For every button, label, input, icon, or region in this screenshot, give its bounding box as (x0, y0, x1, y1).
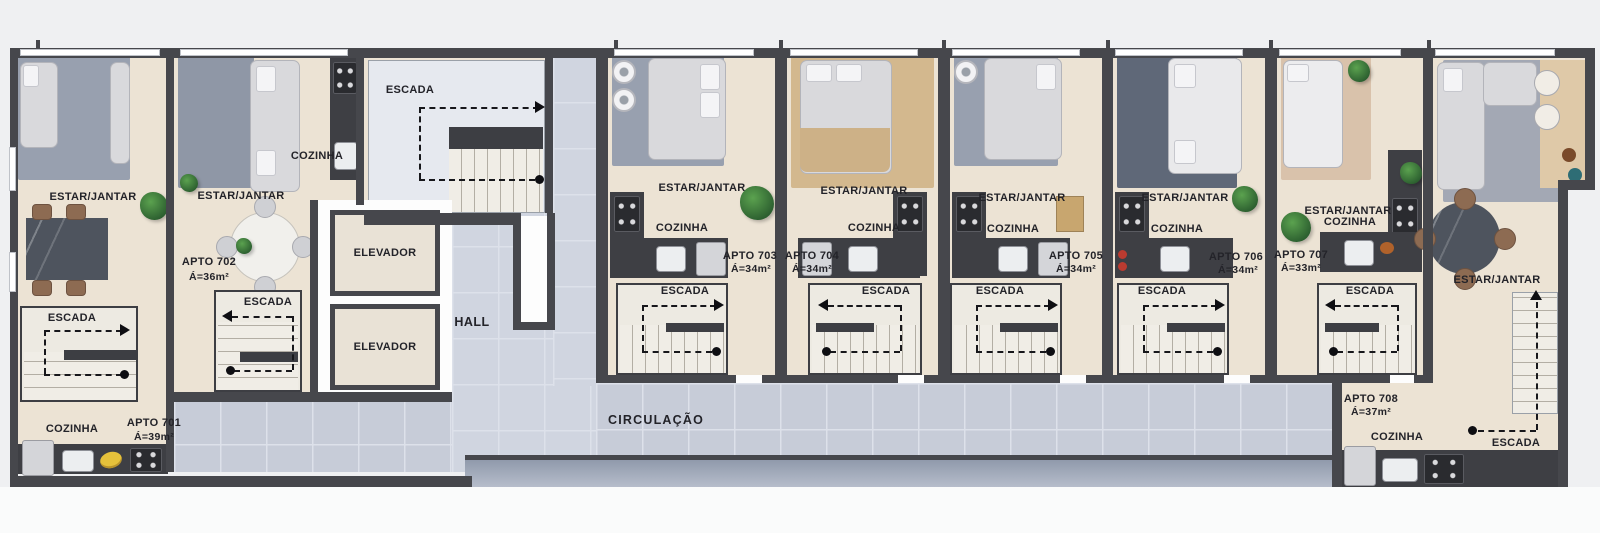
arrow-right-icon (1048, 299, 1058, 311)
label-area-705: Á=34m² (1056, 263, 1096, 275)
wall (166, 392, 452, 402)
stair-landing (64, 350, 138, 360)
plant-icon (236, 238, 252, 254)
stair-path (419, 107, 421, 179)
label-hall: HALL (454, 315, 489, 329)
stair-path (419, 107, 539, 109)
stair-path (1143, 351, 1213, 353)
label-area-703: Á=34m² (731, 263, 771, 275)
window (790, 49, 918, 56)
path-start-dot (1046, 347, 1055, 356)
window (180, 49, 348, 56)
stove (130, 448, 162, 472)
stair-path (1143, 305, 1145, 351)
wall (1558, 180, 1568, 487)
path-start-dot (1213, 347, 1222, 356)
wall-tick (1427, 40, 1431, 48)
label-cozinha-701: COZINHA (46, 423, 98, 435)
washer (612, 60, 636, 84)
hall-floor (553, 56, 596, 386)
path-start-dot (226, 366, 235, 375)
chair (216, 236, 238, 258)
plant-icon (140, 192, 168, 220)
sink (62, 450, 94, 472)
door-opening (1390, 375, 1414, 383)
door-opening (736, 375, 762, 383)
plant-icon (1348, 60, 1370, 82)
arrow-right-icon (535, 101, 545, 113)
wall (1585, 48, 1595, 190)
balcony-ledge (465, 458, 1332, 487)
stair-path (1337, 351, 1397, 353)
corridor-floor (596, 383, 1332, 455)
door-opening (1224, 375, 1250, 383)
path-start-dot (712, 347, 721, 356)
arrow-left-icon (222, 310, 232, 322)
stair-path (1143, 305, 1217, 307)
label-cozinha-707: COZINHA (1324, 216, 1376, 228)
wall (596, 48, 608, 383)
stair-path (642, 351, 712, 353)
chair (1494, 228, 1516, 250)
stair-treads (1121, 325, 1225, 373)
label-estar-jantar-703: ESTAR/JANTAR (659, 182, 746, 194)
stair-path (419, 179, 535, 181)
decor-bowl (1380, 242, 1394, 254)
wall (166, 48, 174, 472)
label-circulacao: CIRCULAÇÃO (608, 413, 704, 427)
window (1435, 49, 1555, 56)
label-escada-702: ESCADA (244, 296, 292, 308)
path-start-dot (1468, 426, 1477, 435)
stair-path (232, 316, 292, 318)
decor-bowl (1562, 148, 1576, 162)
dining-table (26, 218, 108, 280)
label-escada-main: ESCADA (386, 84, 434, 96)
wall-tick (779, 40, 783, 48)
path-start-dot (120, 370, 129, 379)
stove (614, 196, 640, 232)
label-estar-jantar-704: ESTAR/JANTAR (821, 185, 908, 197)
stove (1392, 198, 1418, 234)
stair-path (976, 305, 1050, 307)
corridor-floor (174, 398, 465, 472)
label-escada-705: ESCADA (976, 285, 1024, 297)
pillow (256, 66, 276, 92)
fridge (22, 440, 54, 476)
label-apto-706: APTO 706 (1209, 251, 1263, 263)
pillow (700, 64, 720, 90)
arrow-right-icon (714, 299, 724, 311)
stove (1424, 454, 1464, 484)
washer (612, 88, 636, 112)
decor-bowl (1118, 262, 1127, 271)
wall (513, 213, 521, 328)
label-cozinha-705: COZINHA (987, 223, 1039, 235)
label-apto-705: APTO 705 (1049, 250, 1103, 262)
chair (1454, 188, 1476, 210)
label-cozinha-704: COZINHA (848, 222, 900, 234)
label-escada-707: ESCADA (1346, 285, 1394, 297)
label-cozinha-703: COZINHA (656, 222, 708, 234)
wall (1265, 48, 1277, 383)
pillow (806, 64, 832, 82)
bar-stool (1534, 70, 1560, 96)
path-start-dot (1329, 347, 1338, 356)
plant-icon (180, 174, 198, 192)
chair (66, 280, 86, 296)
stair-path (292, 316, 294, 370)
wall (938, 48, 950, 383)
wall (1102, 48, 1113, 383)
sink (656, 246, 686, 272)
plant-icon (1400, 162, 1422, 184)
label-escada-706: ESCADA (1138, 285, 1186, 297)
window (1115, 49, 1243, 56)
wall (775, 48, 787, 383)
label-apto-708: APTO 708 (1344, 393, 1398, 405)
stair-landing (1167, 323, 1225, 332)
door-opening (521, 216, 547, 322)
label-cozinha-708: COZINHA (1371, 431, 1423, 443)
label-cozinha-706: COZINHA (1151, 223, 1203, 235)
bed-blanket (800, 128, 890, 172)
label-estar-jantar-708: ESTAR/JANTAR (1454, 274, 1541, 286)
label-escada-701: ESCADA (48, 312, 96, 324)
pillow (1036, 64, 1056, 90)
wall (356, 48, 364, 205)
arrow-up-icon (1530, 290, 1542, 300)
arrow-right-icon (1215, 299, 1225, 311)
stair-path (1335, 305, 1397, 307)
label-area-707: Á=33m² (1281, 262, 1321, 274)
chair (32, 280, 52, 296)
window (9, 147, 16, 191)
carpet (178, 56, 254, 188)
window (614, 49, 754, 56)
fridge (1344, 446, 1376, 486)
arrow-left-icon (818, 299, 828, 311)
label-escada-708: ESCADA (1492, 437, 1540, 449)
wall-tick (942, 40, 946, 48)
label-apto-704: APTO 704 (785, 250, 839, 262)
door-opening (898, 375, 924, 383)
path-start-dot (822, 347, 831, 356)
sink (1382, 458, 1418, 482)
label-apto-703: APTO 703 (723, 250, 777, 262)
sink (1160, 246, 1190, 272)
pillow (700, 92, 720, 118)
fridge (696, 242, 726, 276)
window (9, 252, 16, 292)
floor-plan: ESTAR/JANTAR ESTAR/JANTAR ESTAR/JANTAR E… (0, 0, 1600, 533)
wall (1332, 375, 1342, 487)
stair-path (828, 305, 900, 307)
pillow (1174, 64, 1196, 88)
label-apto-702: APTO 702 (182, 256, 236, 268)
label-cozinha-702: COZINHA (291, 150, 343, 162)
plant-icon (1232, 186, 1258, 212)
stair-landing (1000, 323, 1058, 332)
sofa (110, 62, 130, 164)
stair-path (976, 351, 1046, 353)
window (952, 49, 1080, 56)
wall-tick (1106, 40, 1110, 48)
wall (310, 200, 318, 400)
label-apto-701: APTO 701 (127, 417, 181, 429)
stair-landing (666, 323, 724, 332)
pillow (1443, 68, 1463, 92)
wall (545, 48, 553, 213)
stair-path (1536, 302, 1538, 430)
arrow-right-icon (120, 324, 130, 336)
pillow (1287, 64, 1309, 82)
label-escada-703: ESCADA (661, 285, 709, 297)
washer (954, 60, 978, 84)
stair-path (44, 330, 122, 332)
window (1279, 49, 1401, 56)
arrow-left-icon (1325, 299, 1335, 311)
label-escada-704: ESCADA (862, 285, 910, 297)
stairwell-main (368, 60, 545, 213)
chair (32, 204, 52, 220)
wall-tick (36, 40, 40, 48)
label-estar-jantar-701: ESTAR/JANTAR (50, 191, 137, 203)
stair-landing (816, 323, 874, 332)
stair-path (900, 305, 902, 351)
wall (547, 213, 555, 328)
stove (897, 196, 923, 232)
door-opening (1060, 375, 1086, 383)
wall-tick (1269, 40, 1273, 48)
stair-path (642, 305, 716, 307)
label-estar-jantar-705: ESTAR/JANTAR (979, 192, 1066, 204)
stair-path (642, 305, 644, 351)
wall (364, 213, 514, 225)
stair-path (1478, 430, 1536, 432)
wall (465, 455, 1332, 460)
stair-path (44, 330, 46, 374)
sofa (1483, 62, 1537, 106)
label-elevador-1: ELEVADOR (354, 247, 417, 259)
pillow (836, 64, 862, 82)
stair-landing (1325, 323, 1379, 332)
stair-path (44, 374, 122, 376)
bar-stool (1534, 104, 1560, 130)
label-elevador-2: ELEVADOR (354, 341, 417, 353)
stair-path (234, 370, 292, 372)
label-area-701: Á=39m² (134, 431, 174, 443)
pillow (256, 150, 276, 176)
window (20, 49, 160, 56)
sink (1344, 240, 1374, 266)
decor-bowl (1118, 250, 1127, 259)
stair-landing (240, 352, 298, 362)
stair-path (976, 305, 978, 351)
wall (608, 375, 1423, 383)
label-apto-707: APTO 707 (1274, 249, 1328, 261)
stair-landing (449, 127, 543, 149)
label-area-706: Á=34m² (1218, 264, 1258, 276)
label-estar-jantar-706: ESTAR/JANTAR (1142, 192, 1229, 204)
stair-treads-708 (1512, 292, 1558, 414)
label-area-708: Á=37m² (1351, 406, 1391, 418)
stove (333, 62, 357, 94)
label-area-704: Á=34m² (792, 263, 832, 275)
sink (998, 246, 1028, 272)
wall-tick (614, 40, 618, 48)
sink (848, 246, 878, 272)
stair-path (830, 351, 900, 353)
stair-path (1397, 305, 1399, 351)
dining-table (1428, 202, 1500, 274)
path-start-dot (535, 175, 544, 184)
label-area-702: Á=36m² (189, 271, 229, 283)
stair-treads (954, 325, 1058, 373)
wall (1423, 48, 1433, 383)
pillow (23, 65, 39, 87)
page-margin (0, 487, 1600, 533)
label-estar-jantar-702: ESTAR/JANTAR (198, 190, 285, 202)
stair-treads (620, 325, 724, 373)
chair (66, 204, 86, 220)
pillow (1174, 140, 1196, 164)
